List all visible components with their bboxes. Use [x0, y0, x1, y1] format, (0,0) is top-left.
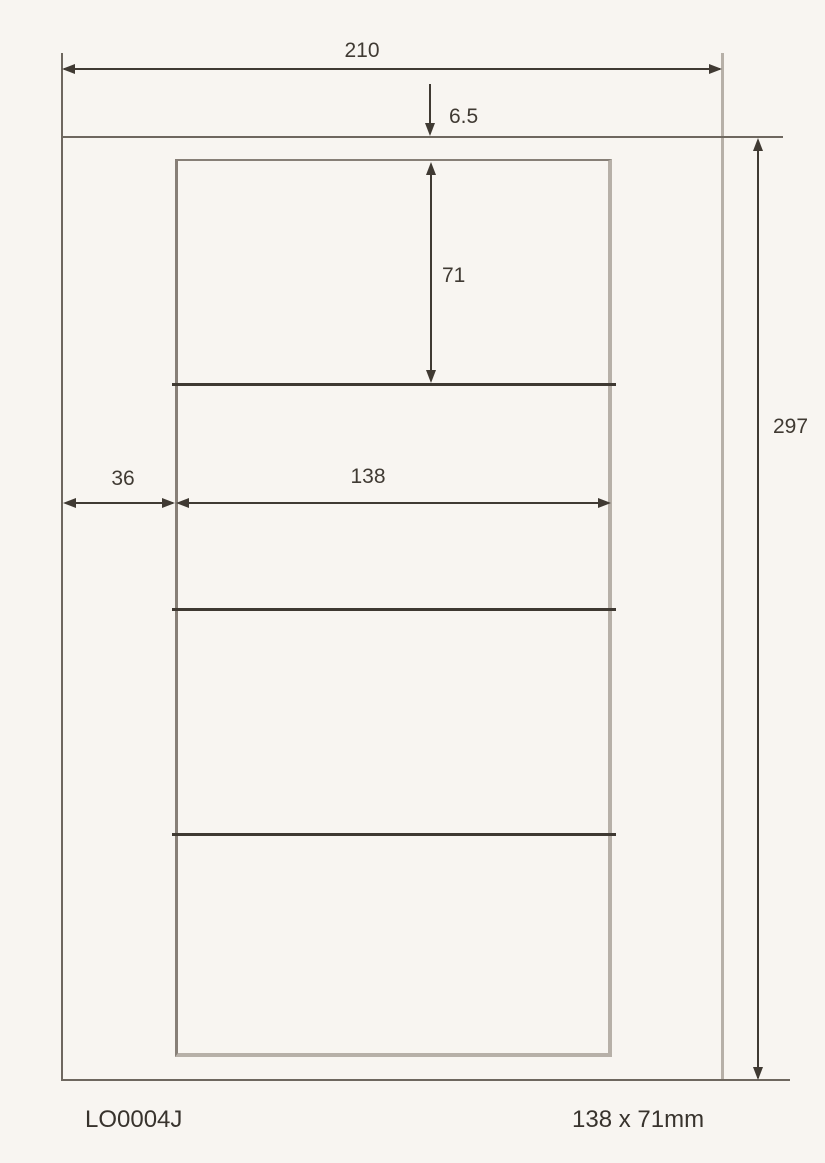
dim-line-left-margin [66, 502, 173, 504]
arrowhead-down-icon [753, 1067, 763, 1080]
arrowhead-left-icon [63, 498, 76, 508]
arrowhead-down-icon [425, 123, 435, 136]
arrowhead-down-icon [426, 370, 436, 383]
dim-line-label-height [430, 166, 432, 378]
dim-label-label-width: 138 [350, 466, 385, 487]
sheet-left-edge [61, 53, 63, 1081]
arrowhead-right-icon [709, 64, 722, 74]
arrowhead-right-icon [598, 498, 611, 508]
arrowhead-left-icon [176, 498, 189, 508]
dimension-drawing-canvas: 210 6.5 71 36 138 297 LO0004J 138 x 71mm [0, 0, 825, 1163]
sheet-bottom-edge [61, 1079, 790, 1081]
arrowhead-up-icon [753, 138, 763, 151]
label-divider-2 [172, 608, 616, 611]
label-divider-3 [172, 833, 616, 836]
product-code: LO0004J [85, 1108, 182, 1132]
arrowhead-up-icon [426, 162, 436, 175]
dim-label-top-margin: 6.5 [449, 106, 478, 127]
dim-line-sheet-width [64, 68, 720, 70]
label-size-text: 138 x 71mm [572, 1108, 704, 1132]
sheet-right-edge [721, 53, 724, 1081]
dim-line-label-width [179, 502, 608, 504]
arrowhead-left-icon [62, 64, 75, 74]
dim-label-sheet-width: 210 [344, 40, 379, 61]
arrowhead-right-icon [162, 498, 175, 508]
dim-label-left-margin: 36 [111, 468, 134, 489]
dim-label-label-height: 71 [442, 265, 465, 286]
dim-label-sheet-height: 297 [773, 416, 808, 437]
label-divider-1 [172, 383, 616, 386]
sheet-top-edge [61, 136, 783, 138]
dim-line-sheet-height [757, 142, 759, 1078]
dim-line-top-margin [429, 84, 431, 126]
